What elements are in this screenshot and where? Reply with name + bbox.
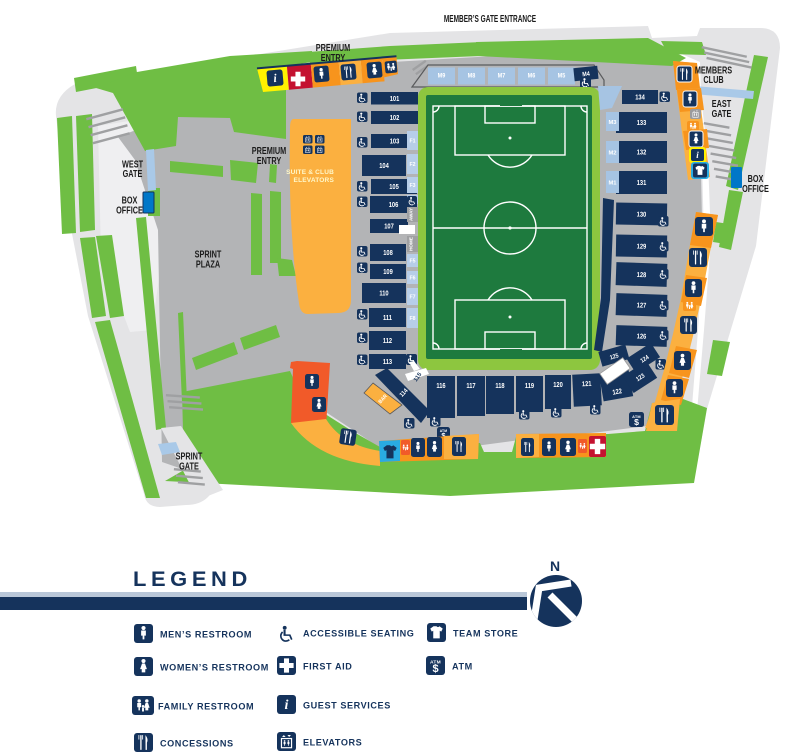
svg-text:F2: F2 [409,162,415,168]
svg-text:121: 121 [582,380,592,388]
svg-text:ELEVATORS: ELEVATORS [303,737,362,747]
svg-text:M5: M5 [558,73,566,79]
svg-text:112: 112 [383,338,393,346]
svg-text:102: 102 [390,115,400,123]
svg-text:134: 134 [635,94,645,102]
svg-text:GUEST SERVICES: GUEST SERVICES [303,700,391,710]
svg-text:M9: M9 [438,73,446,79]
svg-text:F3: F3 [409,183,415,189]
svg-text:M8: M8 [468,73,476,79]
svg-text:133: 133 [637,120,647,128]
svg-text:M1: M1 [608,181,617,187]
svg-text:F7: F7 [409,294,415,300]
svg-text:118: 118 [495,383,505,391]
svg-text:i: i [285,697,289,713]
svg-text:ACCESSIBLE SEATING: ACCESSIBLE SEATING [303,628,414,638]
svg-text:CONCESSIONS: CONCESSIONS [160,738,234,748]
svg-text:132: 132 [637,149,647,157]
svg-text:GATE: GATE [179,460,199,471]
svg-text:LEGEND: LEGEND [133,566,252,591]
svg-text:131: 131 [637,180,647,188]
svg-text:119: 119 [525,383,535,391]
svg-text:FIRST AID: FIRST AID [303,661,352,671]
svg-text:108: 108 [383,250,393,258]
svg-text:MEMBER’S GATE ENTRANCE: MEMBER’S GATE ENTRANCE [444,12,536,24]
svg-text:F5: F5 [409,258,415,264]
svg-text:129: 129 [637,243,647,251]
svg-text:GATE: GATE [712,108,732,119]
svg-text:ENTRY: ENTRY [321,52,346,63]
svg-text:M7: M7 [498,73,506,79]
svg-text:M2: M2 [608,151,616,157]
svg-text:103: 103 [390,138,400,146]
svg-text:111: 111 [383,315,392,323]
svg-text:110: 110 [379,290,389,298]
svg-text:TEAM STORE: TEAM STORE [453,628,518,638]
svg-text:F1: F1 [409,138,415,144]
svg-text:F8: F8 [409,316,415,322]
svg-text:ELEVATORS: ELEVATORS [294,177,335,184]
svg-text:109: 109 [383,269,393,277]
svg-text:PLAZA: PLAZA [196,258,221,269]
svg-text:CLUB: CLUB [703,74,723,85]
svg-text:GATE: GATE [123,168,143,179]
svg-text:113: 113 [383,359,393,367]
svg-text:128: 128 [637,271,647,279]
svg-text:HOME: HOME [409,237,414,251]
svg-text:126: 126 [637,333,647,341]
svg-text:AWAY: AWAY [409,208,414,221]
svg-text:116: 116 [436,383,446,391]
svg-text:101: 101 [390,95,400,103]
svg-text:F6: F6 [409,275,415,281]
svg-text:106: 106 [389,202,399,210]
svg-text:FAMILY RESTROOM: FAMILY RESTROOM [158,701,254,711]
svg-text:104: 104 [379,163,389,171]
svg-text:ENTRY: ENTRY [257,155,282,166]
svg-text:WOMEN’S RESTROOM: WOMEN’S RESTROOM [160,662,269,672]
svg-text:117: 117 [466,383,476,391]
svg-text:ATM: ATM [452,661,473,671]
svg-text:105: 105 [389,184,399,192]
svg-text:$: $ [634,417,639,427]
svg-text:130: 130 [637,211,647,219]
svg-text:$: $ [432,663,438,675]
svg-text:120: 120 [553,382,563,390]
svg-text:M6: M6 [528,73,536,79]
svg-text:SUITE & CLUB: SUITE & CLUB [286,169,334,176]
svg-text:107: 107 [384,223,394,231]
svg-text:127: 127 [637,302,647,310]
svg-text:OFFICE: OFFICE [116,204,143,215]
svg-text:OFFICE: OFFICE [742,183,769,194]
svg-text:M3: M3 [608,120,617,126]
svg-text:N: N [550,558,560,574]
svg-text:MEN’S RESTROOM: MEN’S RESTROOM [160,629,252,639]
